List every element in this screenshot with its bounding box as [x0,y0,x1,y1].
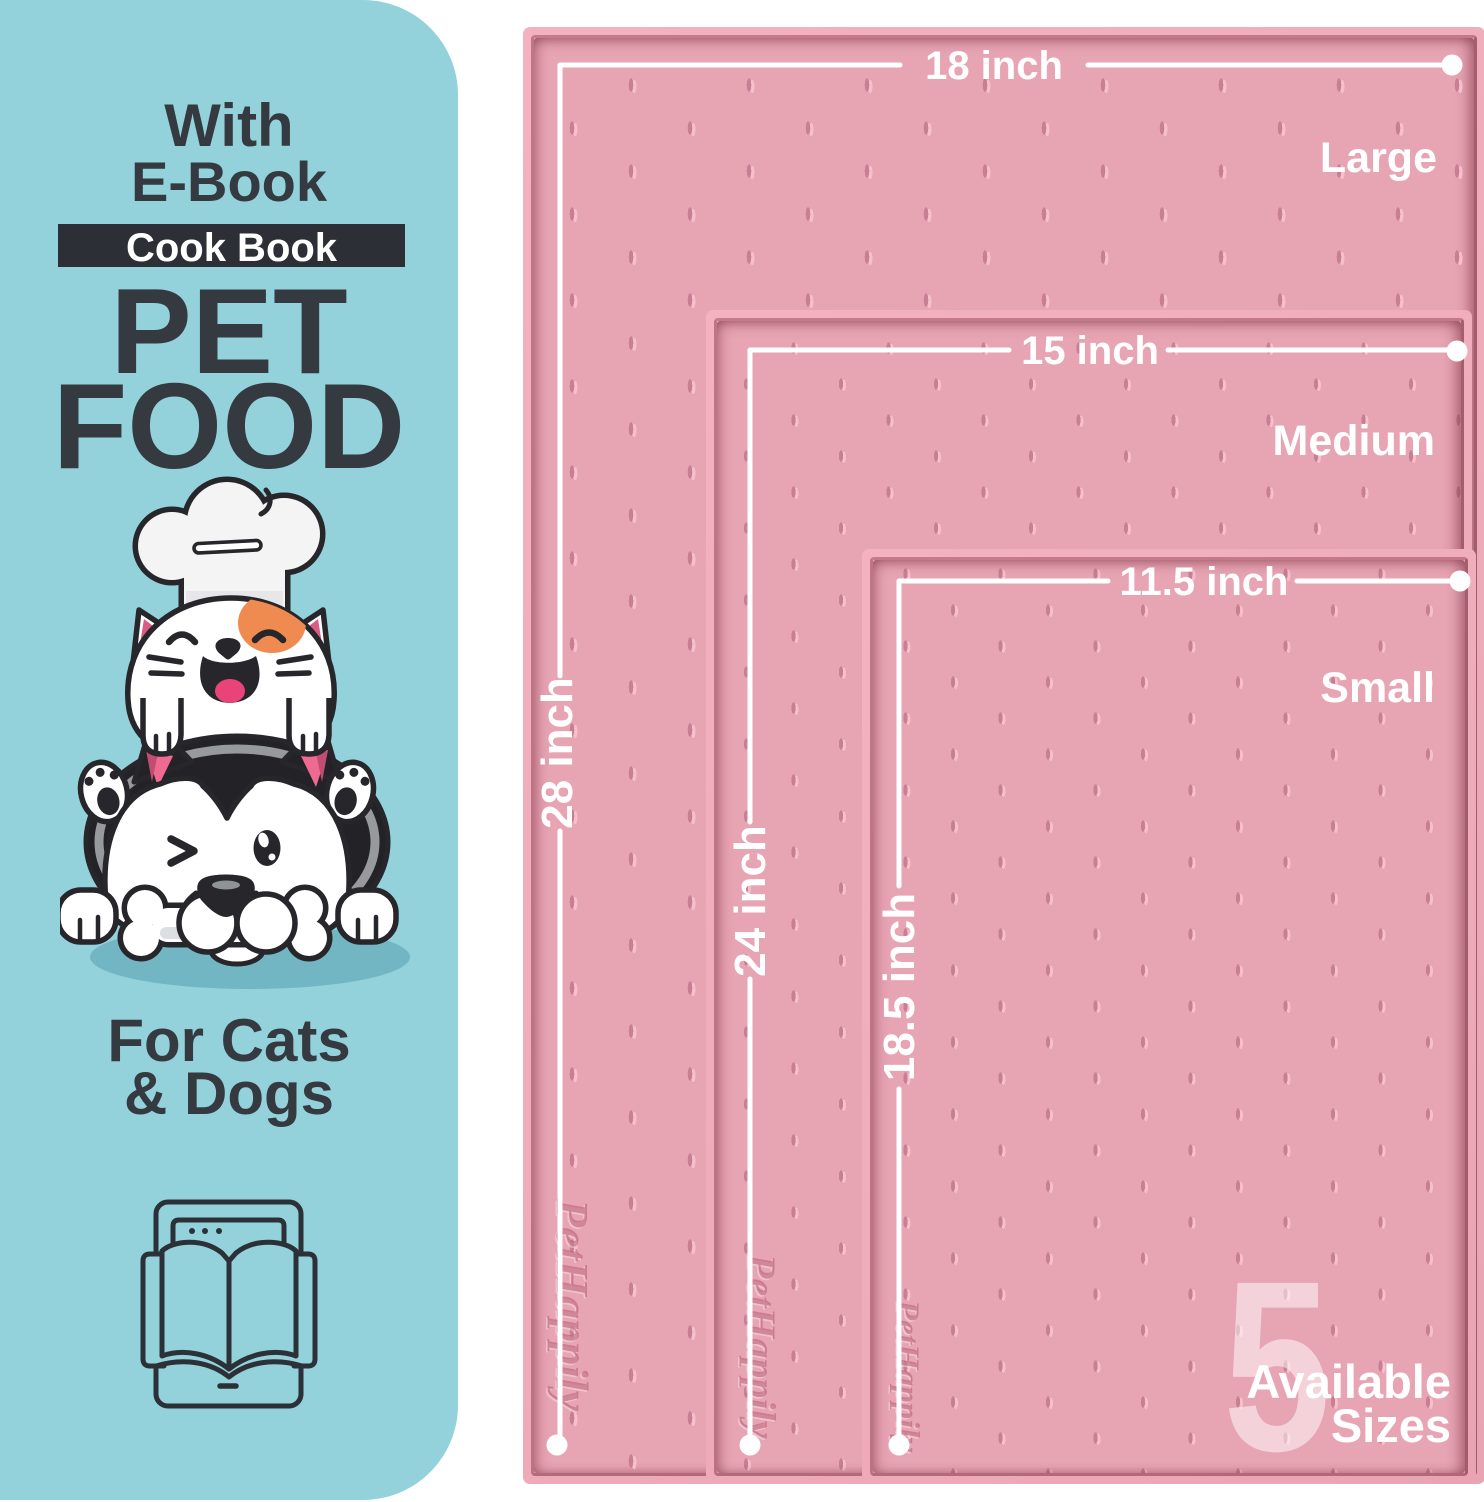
svg-text:18 inch: 18 inch [925,44,1063,88]
svg-text:28 inch: 28 inch [533,677,582,829]
svg-text:15 inch: 15 inch [1021,329,1159,373]
svg-text:24 inch: 24 inch [726,825,775,977]
svg-text:11.5 inch: 11.5 inch [1120,560,1289,604]
svg-text:18.5 inch: 18.5 inch [875,893,924,1081]
